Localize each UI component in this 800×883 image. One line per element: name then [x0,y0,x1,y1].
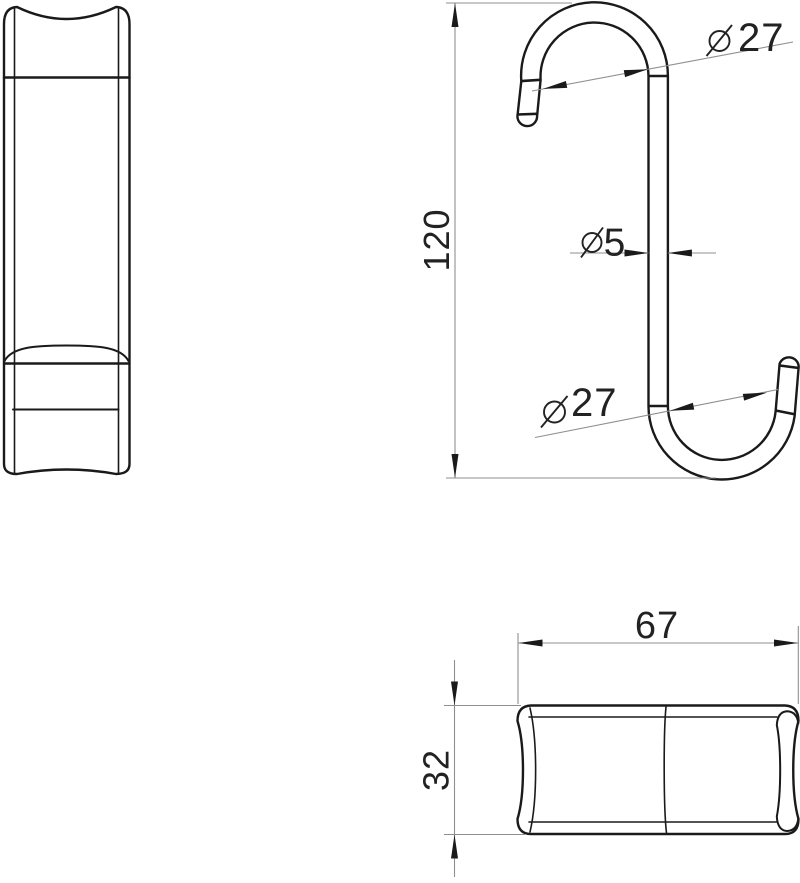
technical-drawing: 120 5 27 [0,0,800,883]
dim-bottom-hook-label: 27 [571,381,618,425]
dim-wire-arrow-right [668,250,692,257]
dim-height: 120 [416,3,716,478]
top-tip-bend-tick [521,80,540,81]
dim-height-label: 120 [416,208,457,271]
dim-depth-arrow-bottom [451,835,458,859]
s-hook-outline [517,2,798,479]
dim-width-arrow-left [519,640,543,647]
bottom-tip-bend-tick [776,411,796,415]
dim-width-label: 67 [635,605,679,647]
dim-top-hook-label: 27 [738,16,785,60]
dim-wire-arrow-left [625,250,649,257]
dim-depth: 32 [416,660,526,877]
front-view [4,7,130,474]
dim-height-arrow-bottom [452,454,459,478]
bottom-tip-cap-tick [780,366,799,369]
drawing-page: 120 5 27 [0,0,800,883]
dim-width: 67 [518,605,798,704]
top-view-stem-line [664,707,666,833]
dim-height-arrow-top [452,3,459,27]
top-tip-cap-tick [518,114,538,115]
dim-wire-label: 5 [604,222,627,265]
diameter-symbol-icon [707,25,733,56]
top-view-outline [518,706,799,835]
dim-depth-arrow-top [451,682,458,706]
top-view-left-edge-curve [530,708,536,832]
dim-top-hook-arrow-right [624,66,649,77]
top-view-hook-tip-outline [777,711,799,831]
side-view: 120 5 27 [416,2,799,479]
dim-width-arrow-right [774,640,798,647]
top-view: 67 32 [416,605,799,877]
dim-wire-diameter: 5 [570,222,716,265]
front-bend-curve [5,346,129,362]
dim-depth-label: 32 [416,749,457,791]
diameter-symbol-icon [541,396,568,428]
dim-bottom-hook-diameter: 27 [535,381,778,438]
dim-bottom-hook-arrow-right [743,389,768,401]
dim-top-hook-arrow-left [542,81,567,92]
dim-bottom-hook-arrow-left [669,403,694,415]
